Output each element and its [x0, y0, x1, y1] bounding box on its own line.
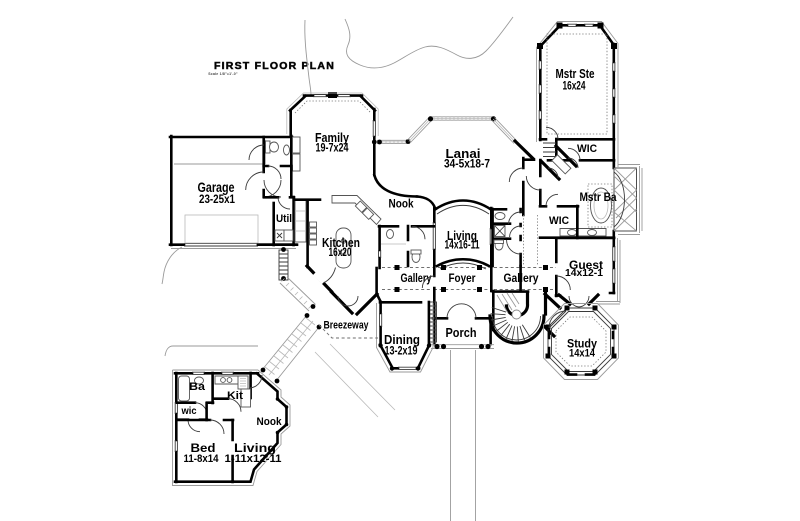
svg-text:Nook: Nook [257, 416, 283, 428]
svg-text:16x24: 16x24 [563, 79, 586, 93]
svg-text:13-2x19: 13-2x19 [385, 344, 418, 358]
svg-text:Nook: Nook [389, 199, 415, 211]
svg-text:34-5x18-7: 34-5x18-7 [444, 157, 490, 171]
svg-text:14x12-1: 14x12-1 [565, 267, 603, 279]
svg-text:wic: wic [181, 406, 197, 417]
svg-text:16x20: 16x20 [329, 245, 352, 259]
svg-text:Foyer: Foyer [449, 271, 476, 285]
svg-text:Util: Util [276, 213, 292, 225]
svg-text:Ba: Ba [189, 381, 206, 393]
svg-text:Kit: Kit [227, 390, 243, 402]
svg-text:FIRST FLOOR PLAN: FIRST FLOOR PLAN [214, 60, 336, 72]
svg-text:Breezeway: Breezeway [324, 320, 370, 332]
svg-text:1-11x12-11: 1-11x12-11 [225, 453, 282, 465]
svg-text:19-7x24: 19-7x24 [316, 141, 349, 155]
svg-text:14x14: 14x14 [569, 348, 596, 360]
svg-text:Porch: Porch [446, 325, 477, 340]
svg-text:11-8x14: 11-8x14 [184, 453, 220, 465]
svg-text:Scale 1/8"=1'-0": Scale 1/8"=1'-0" [208, 72, 238, 76]
svg-text:WIC: WIC [577, 143, 597, 155]
svg-text:Mstr Ba: Mstr Ba [580, 192, 618, 204]
svg-text:23-25x1: 23-25x1 [199, 192, 235, 206]
svg-text:14x16-11: 14x16-11 [445, 238, 480, 252]
svg-text:WIC: WIC [549, 215, 569, 227]
